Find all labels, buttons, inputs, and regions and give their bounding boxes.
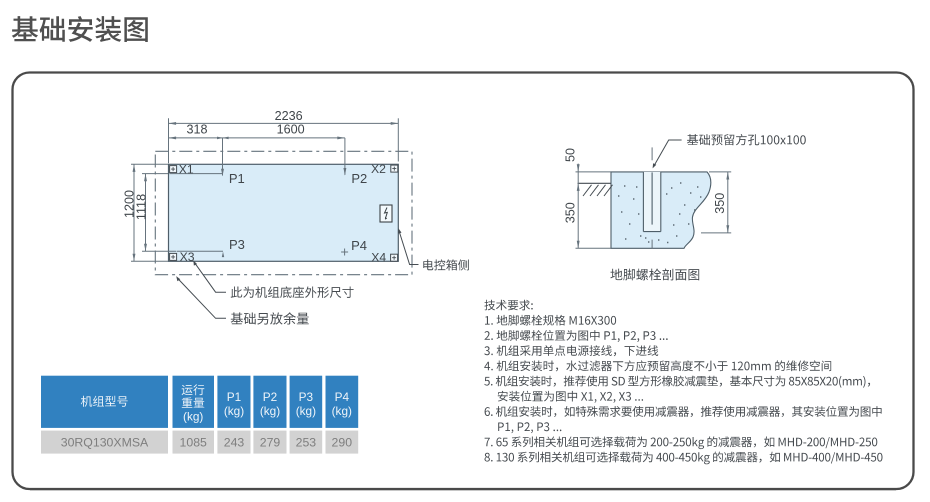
svg-text:1600: 1600	[277, 123, 305, 137]
svg-text:X1: X1	[179, 163, 194, 177]
svg-text:1118: 1118	[134, 194, 148, 220]
svg-text:243: 243	[224, 435, 245, 449]
svg-text:(kg): (kg)	[332, 404, 352, 418]
svg-text:(kg): (kg)	[183, 409, 203, 423]
svg-text:318: 318	[186, 123, 207, 137]
svg-text:2236: 2236	[275, 109, 303, 123]
svg-text:P1: P1	[227, 390, 241, 404]
svg-text:50: 50	[563, 148, 577, 162]
svg-text:X3: X3	[180, 250, 195, 264]
svg-text:(kg): (kg)	[296, 404, 316, 418]
svg-text:350: 350	[563, 202, 577, 223]
svg-text:30RQ130XMSA: 30RQ130XMSA	[61, 435, 149, 449]
svg-text:P2: P2	[263, 390, 277, 404]
svg-text:253: 253	[296, 435, 317, 449]
svg-text:P3: P3	[229, 237, 245, 252]
svg-text:X2: X2	[371, 162, 386, 176]
svg-text:P3: P3	[299, 390, 314, 404]
svg-text:P4: P4	[351, 238, 367, 253]
svg-text:290: 290	[332, 435, 353, 449]
svg-text:279: 279	[260, 435, 281, 449]
svg-text:P4: P4	[335, 390, 350, 404]
svg-text:(kg): (kg)	[260, 404, 280, 418]
svg-text:(kg): (kg)	[224, 404, 244, 418]
svg-text:P2: P2	[351, 171, 367, 186]
svg-text:350: 350	[713, 193, 727, 214]
svg-text:X4: X4	[371, 251, 386, 265]
svg-text:1085: 1085	[180, 435, 208, 449]
svg-text:P1: P1	[229, 171, 245, 186]
